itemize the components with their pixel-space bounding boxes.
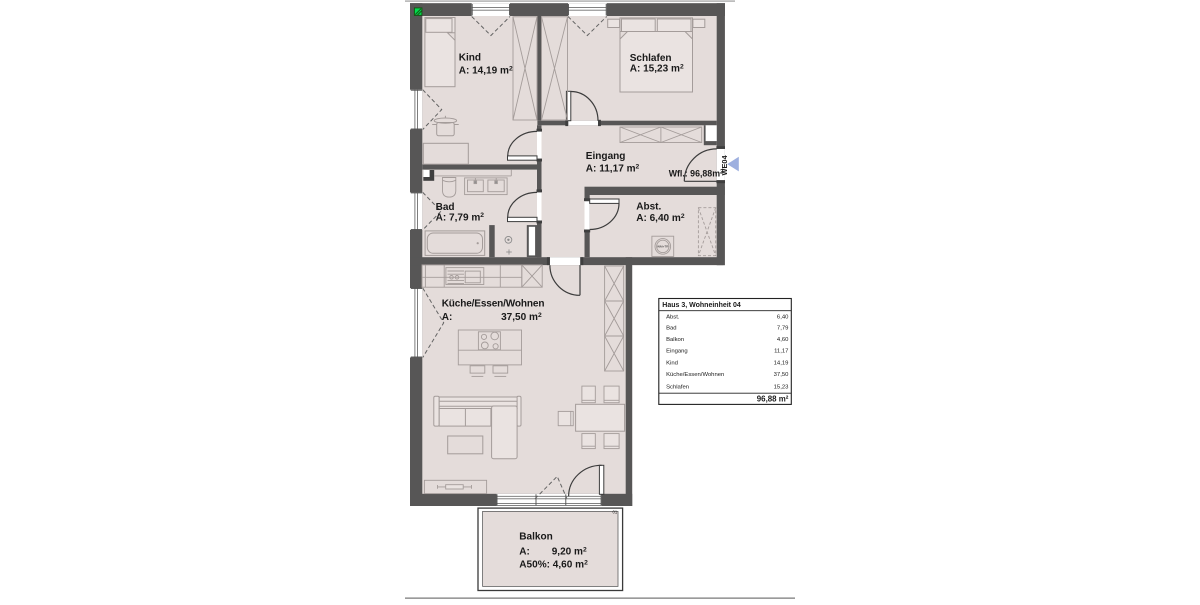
svg-text:11,17: 11,17	[774, 349, 788, 355]
svg-text:4,60: 4,60	[777, 337, 789, 343]
svg-text:96,88 m²: 96,88 m²	[757, 395, 789, 404]
svg-text:7,79: 7,79	[777, 326, 788, 332]
svg-text:Schlafen: Schlafen	[666, 385, 689, 391]
svg-text:Balkon: Balkon	[666, 337, 684, 343]
svg-text:Kind: Kind	[666, 361, 678, 367]
svg-text:Küche/Essen/Wohnen: Küche/Essen/Wohnen	[666, 372, 724, 378]
svg-text:9,20 m2: 9,20 m2	[552, 546, 587, 557]
svg-text:6,40: 6,40	[777, 314, 789, 320]
svg-text:37,50 m2: 37,50 m2	[501, 312, 542, 323]
svg-text:Eingang: Eingang	[666, 349, 688, 355]
svg-text:37,50: 37,50	[774, 372, 789, 378]
svg-text:Wfl.: 96,88m2: Wfl.: 96,88m2	[669, 169, 724, 179]
svg-text:Balkon: Balkon	[519, 532, 553, 543]
svg-text:15,23: 15,23	[774, 385, 789, 391]
svg-text:Bad: Bad	[436, 202, 455, 213]
svg-text:A: 11,17 m2: A: 11,17 m2	[586, 164, 640, 175]
svg-text:Kind: Kind	[459, 53, 481, 64]
svg-text:14,19: 14,19	[774, 361, 789, 367]
svg-text:A: 14,19 m2: A: 14,19 m2	[459, 66, 513, 77]
svg-text:WM+TR: WM+TR	[657, 245, 669, 249]
svg-text:01: 01	[613, 510, 618, 515]
svg-text:A:: A:	[442, 312, 453, 323]
svg-text:Küche/Essen/Wohnen: Küche/Essen/Wohnen	[442, 299, 545, 310]
svg-text:Schlafen: Schlafen	[630, 53, 672, 64]
svg-text:Abst.: Abst.	[666, 314, 680, 320]
svg-text:A: 6,40 m2: A: 6,40 m2	[636, 213, 685, 224]
svg-text:A: 7,79 m2: A: 7,79 m2	[436, 212, 485, 223]
svg-text:Eingang: Eingang	[586, 151, 626, 162]
svg-text:A50%: 4,60 m2: A50%: 4,60 m2	[519, 560, 588, 571]
svg-text:Haus 3, Wohneinheit 04: Haus 3, Wohneinheit 04	[662, 302, 741, 309]
svg-text:A:: A:	[519, 547, 530, 558]
svg-text:Bad: Bad	[666, 326, 676, 332]
svg-text:A: 15,23 m2: A: 15,23 m2	[630, 64, 684, 75]
svg-text:Abst.: Abst.	[636, 202, 661, 213]
